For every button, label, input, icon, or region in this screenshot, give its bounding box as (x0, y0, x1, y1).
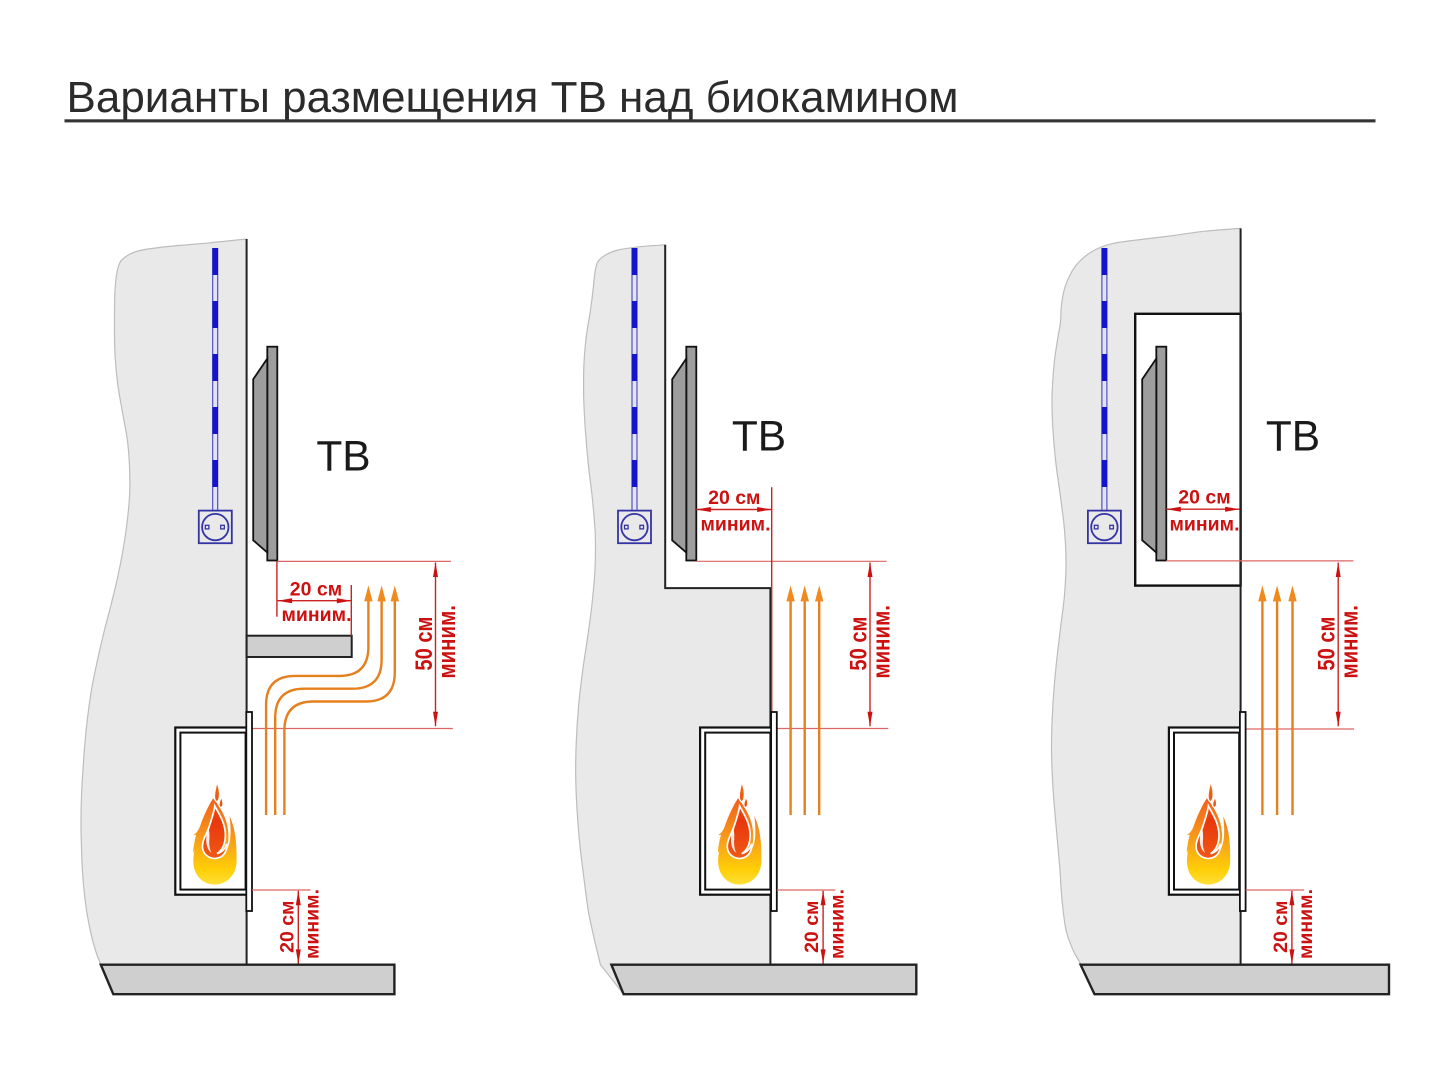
svg-text:миним.: миним. (281, 604, 351, 626)
svg-text:миним.: миним. (302, 889, 324, 959)
svg-text:Варианты размещения ТВ над био: Варианты размещения ТВ над биокамином (67, 73, 959, 122)
svg-text:20 см: 20 см (276, 901, 298, 953)
svg-text:миним.: миним. (1337, 605, 1364, 679)
svg-text:20 см: 20 см (1270, 901, 1292, 953)
svg-text:миним.: миним. (1169, 514, 1239, 536)
svg-text:20 см: 20 см (708, 487, 760, 509)
svg-text:20 см: 20 см (290, 578, 342, 600)
svg-text:миним.: миним. (700, 514, 770, 536)
svg-text:20 см: 20 см (801, 901, 823, 953)
svg-text:ТВ: ТВ (1266, 414, 1320, 461)
svg-text:20 см: 20 см (1178, 487, 1230, 509)
svg-text:миним.: миним. (869, 605, 896, 679)
svg-text:миним.: миним. (1295, 889, 1317, 959)
svg-text:ТВ: ТВ (316, 433, 370, 480)
svg-text:миним.: миним. (434, 605, 461, 679)
svg-text:миним.: миним. (826, 889, 848, 959)
svg-text:ТВ: ТВ (732, 414, 786, 461)
